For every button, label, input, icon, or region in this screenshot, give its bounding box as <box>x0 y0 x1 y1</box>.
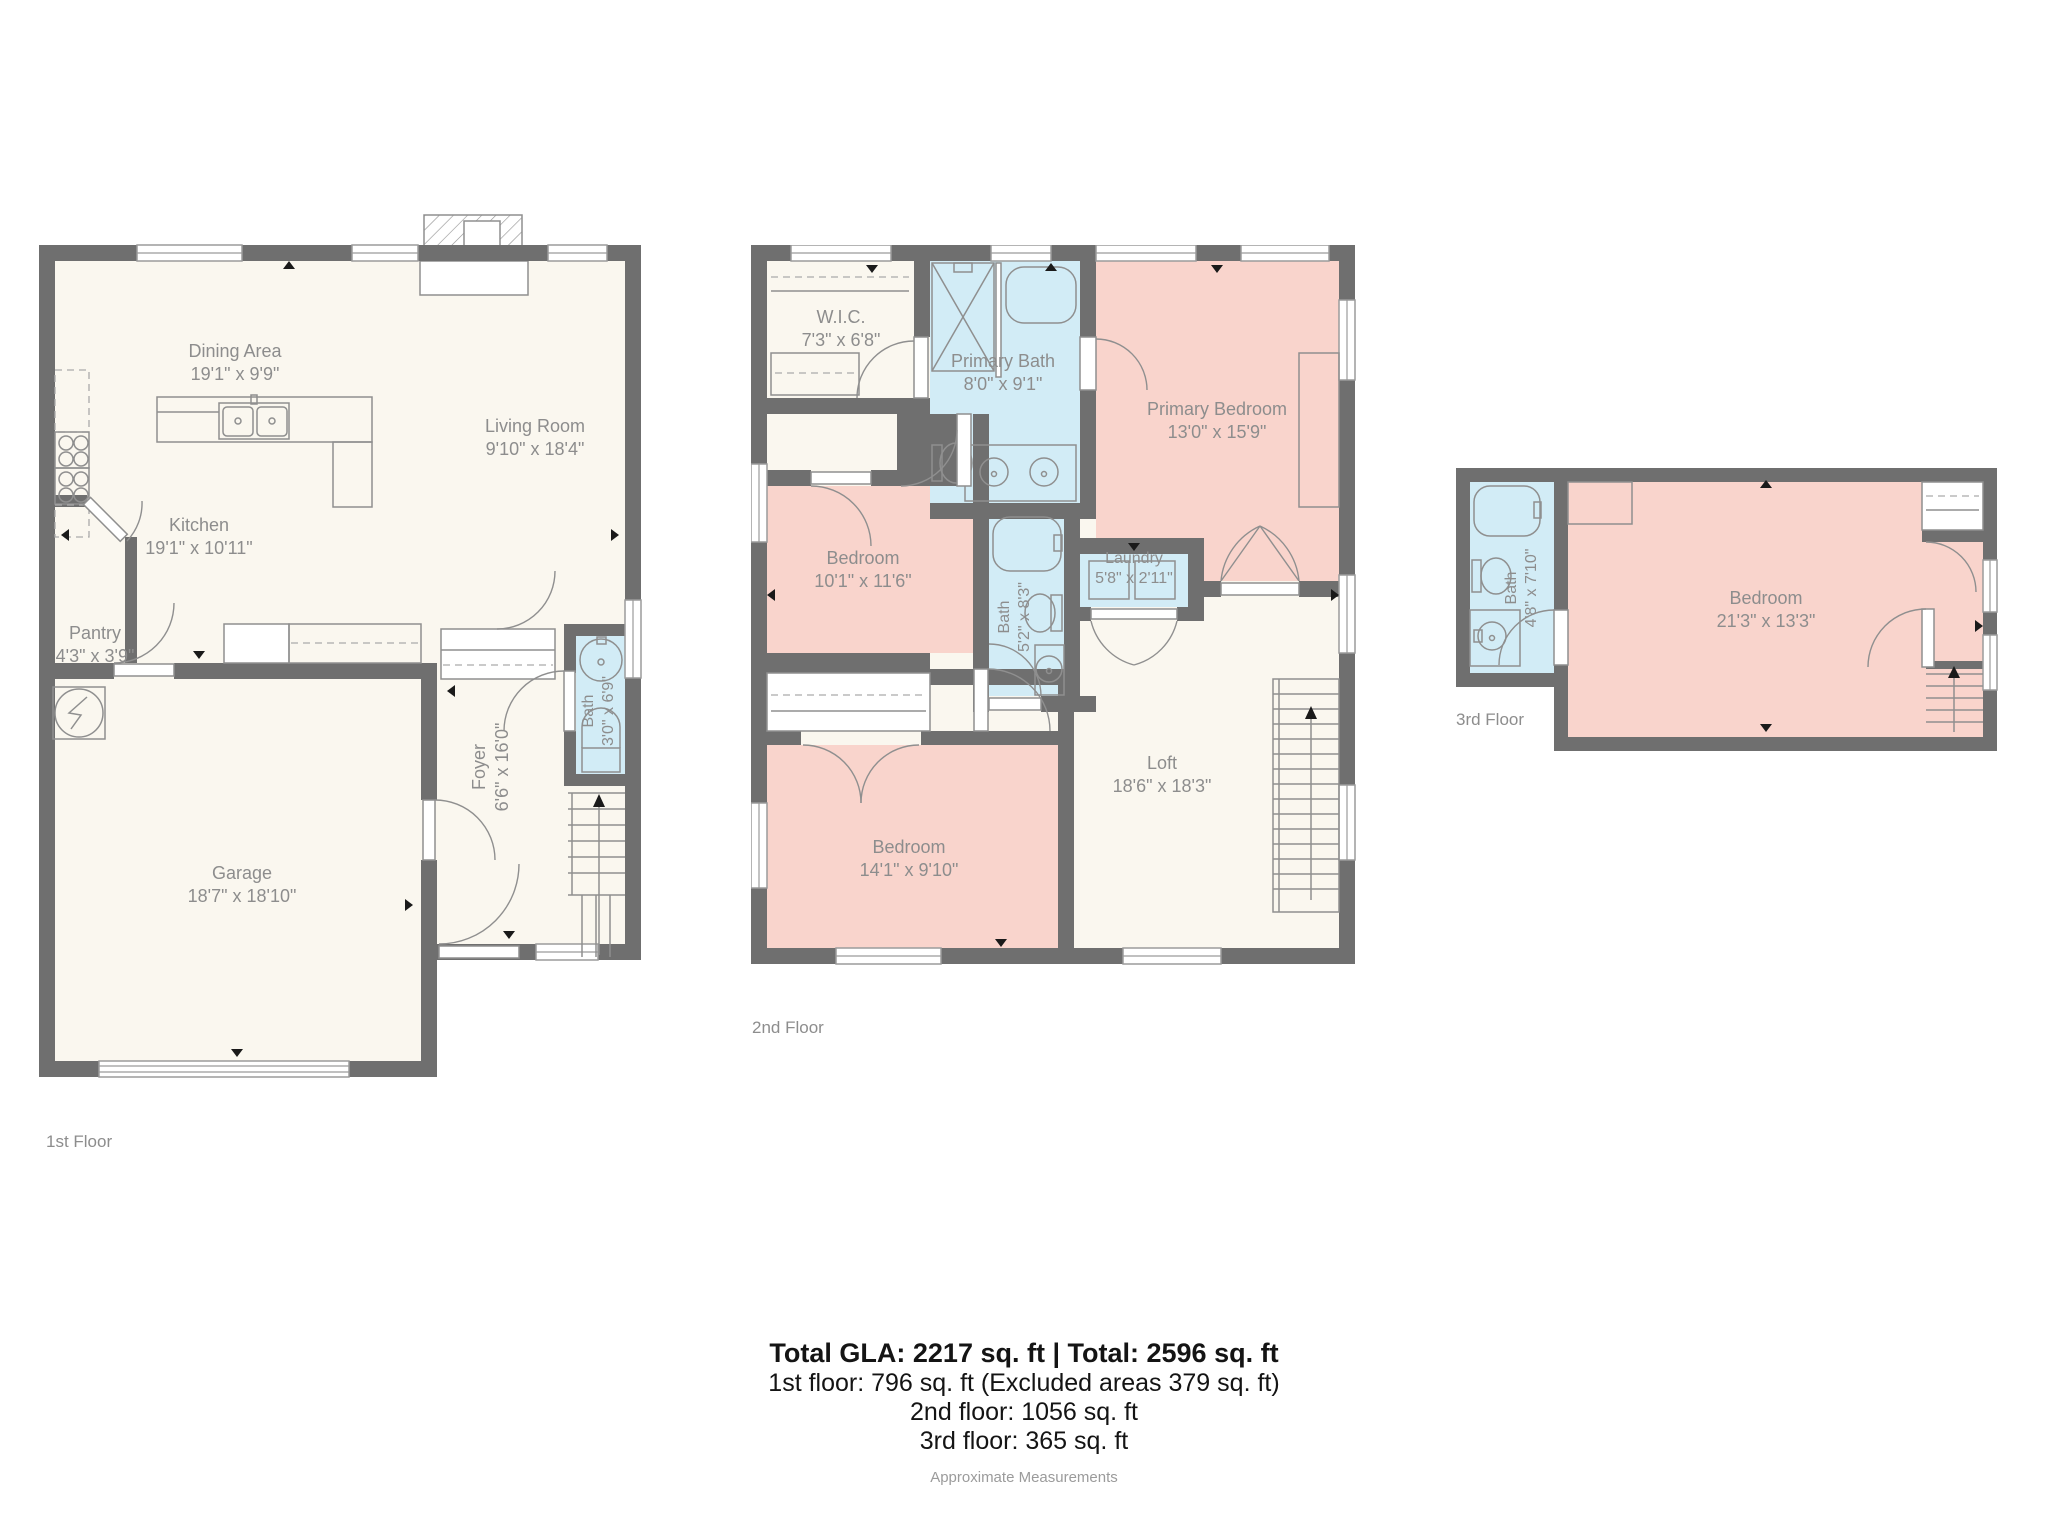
floor3-plan: Bath 4'8" x 7'10" Bedroom 21'3" x 13'3" <box>1456 460 2016 760</box>
room-label-garage: Garage 18'7" x 18'10" <box>188 862 297 908</box>
room-label-pantry: Pantry 4'3" x 3'9" <box>56 622 135 668</box>
room-dims: 19'1" x 9'9" <box>188 363 281 386</box>
room-label-bedroom-bottom: Bedroom 14'1" x 9'10" <box>860 836 959 882</box>
room-label-laundry: Laundry 5'8" x 2'11" <box>1095 549 1173 589</box>
room-label-bath1: Bath 3'0" x 6'9" <box>579 676 619 746</box>
floor2-plan: W.I.C. 7'3" x 6'8" Primary Bath 8'0" x 9… <box>751 245 1361 970</box>
room-label-wic: W.I.C. 7'3" x 6'8" <box>802 306 881 352</box>
floor1-label: 1st Floor <box>46 1132 112 1152</box>
room-label-dining: Dining Area 19'1" x 9'9" <box>188 340 281 386</box>
summary-total: Total GLA: 2217 sq. ft | Total: 2596 sq.… <box>0 1338 2048 1369</box>
bedroom-closet <box>767 673 930 731</box>
floor2-label: 2nd Floor <box>752 1018 824 1038</box>
summary-block: Total GLA: 2217 sq. ft | Total: 2596 sq.… <box>0 1338 2048 1486</box>
summary-note: Approximate Measurements <box>0 1469 2048 1486</box>
room-label-bedroom-left: Bedroom 10'1" x 11'6" <box>814 547 911 593</box>
floor-plan-page: { "floor1": { "label": "1st Floor", "din… <box>0 0 2048 1536</box>
floor1-plan: Dining Area 19'1" x 9'9" Living Room 9'1… <box>39 205 654 1110</box>
room-label-bath3: Bath 4'8" x 7'10" <box>1502 549 1542 628</box>
summary-floor3: 3rd floor: 365 sq. ft <box>0 1427 2048 1456</box>
floor3-label: 3rd Floor <box>1456 710 1524 730</box>
room-name: Dining Area <box>188 340 281 363</box>
room-label-primary-bath: Primary Bath 8'0" x 9'1" <box>951 350 1055 396</box>
room-label-foyer: Foyer 6'6" x 16'0" <box>468 723 514 812</box>
room-label-loft: Loft 18'6" x 18'3" <box>1113 752 1212 798</box>
floor2-plan-svg <box>751 245 1361 970</box>
room-label-kitchen: Kitchen 19'1" x 10'11" <box>145 514 252 560</box>
room-label-bath2: Bath 5'2" x 8'3" <box>995 582 1035 652</box>
summary-floor1: 1st floor: 796 sq. ft (Excluded areas 37… <box>0 1369 2048 1398</box>
summary-floor2: 2nd floor: 1056 sq. ft <box>0 1398 2048 1427</box>
room-label-living: Living Room 9'10" x 18'4" <box>485 415 585 461</box>
room-label-primary-bedroom: Primary Bedroom 13'0" x 15'9" <box>1147 398 1287 444</box>
room-label-bedroom3: Bedroom 21'3" x 13'3" <box>1717 587 1816 633</box>
